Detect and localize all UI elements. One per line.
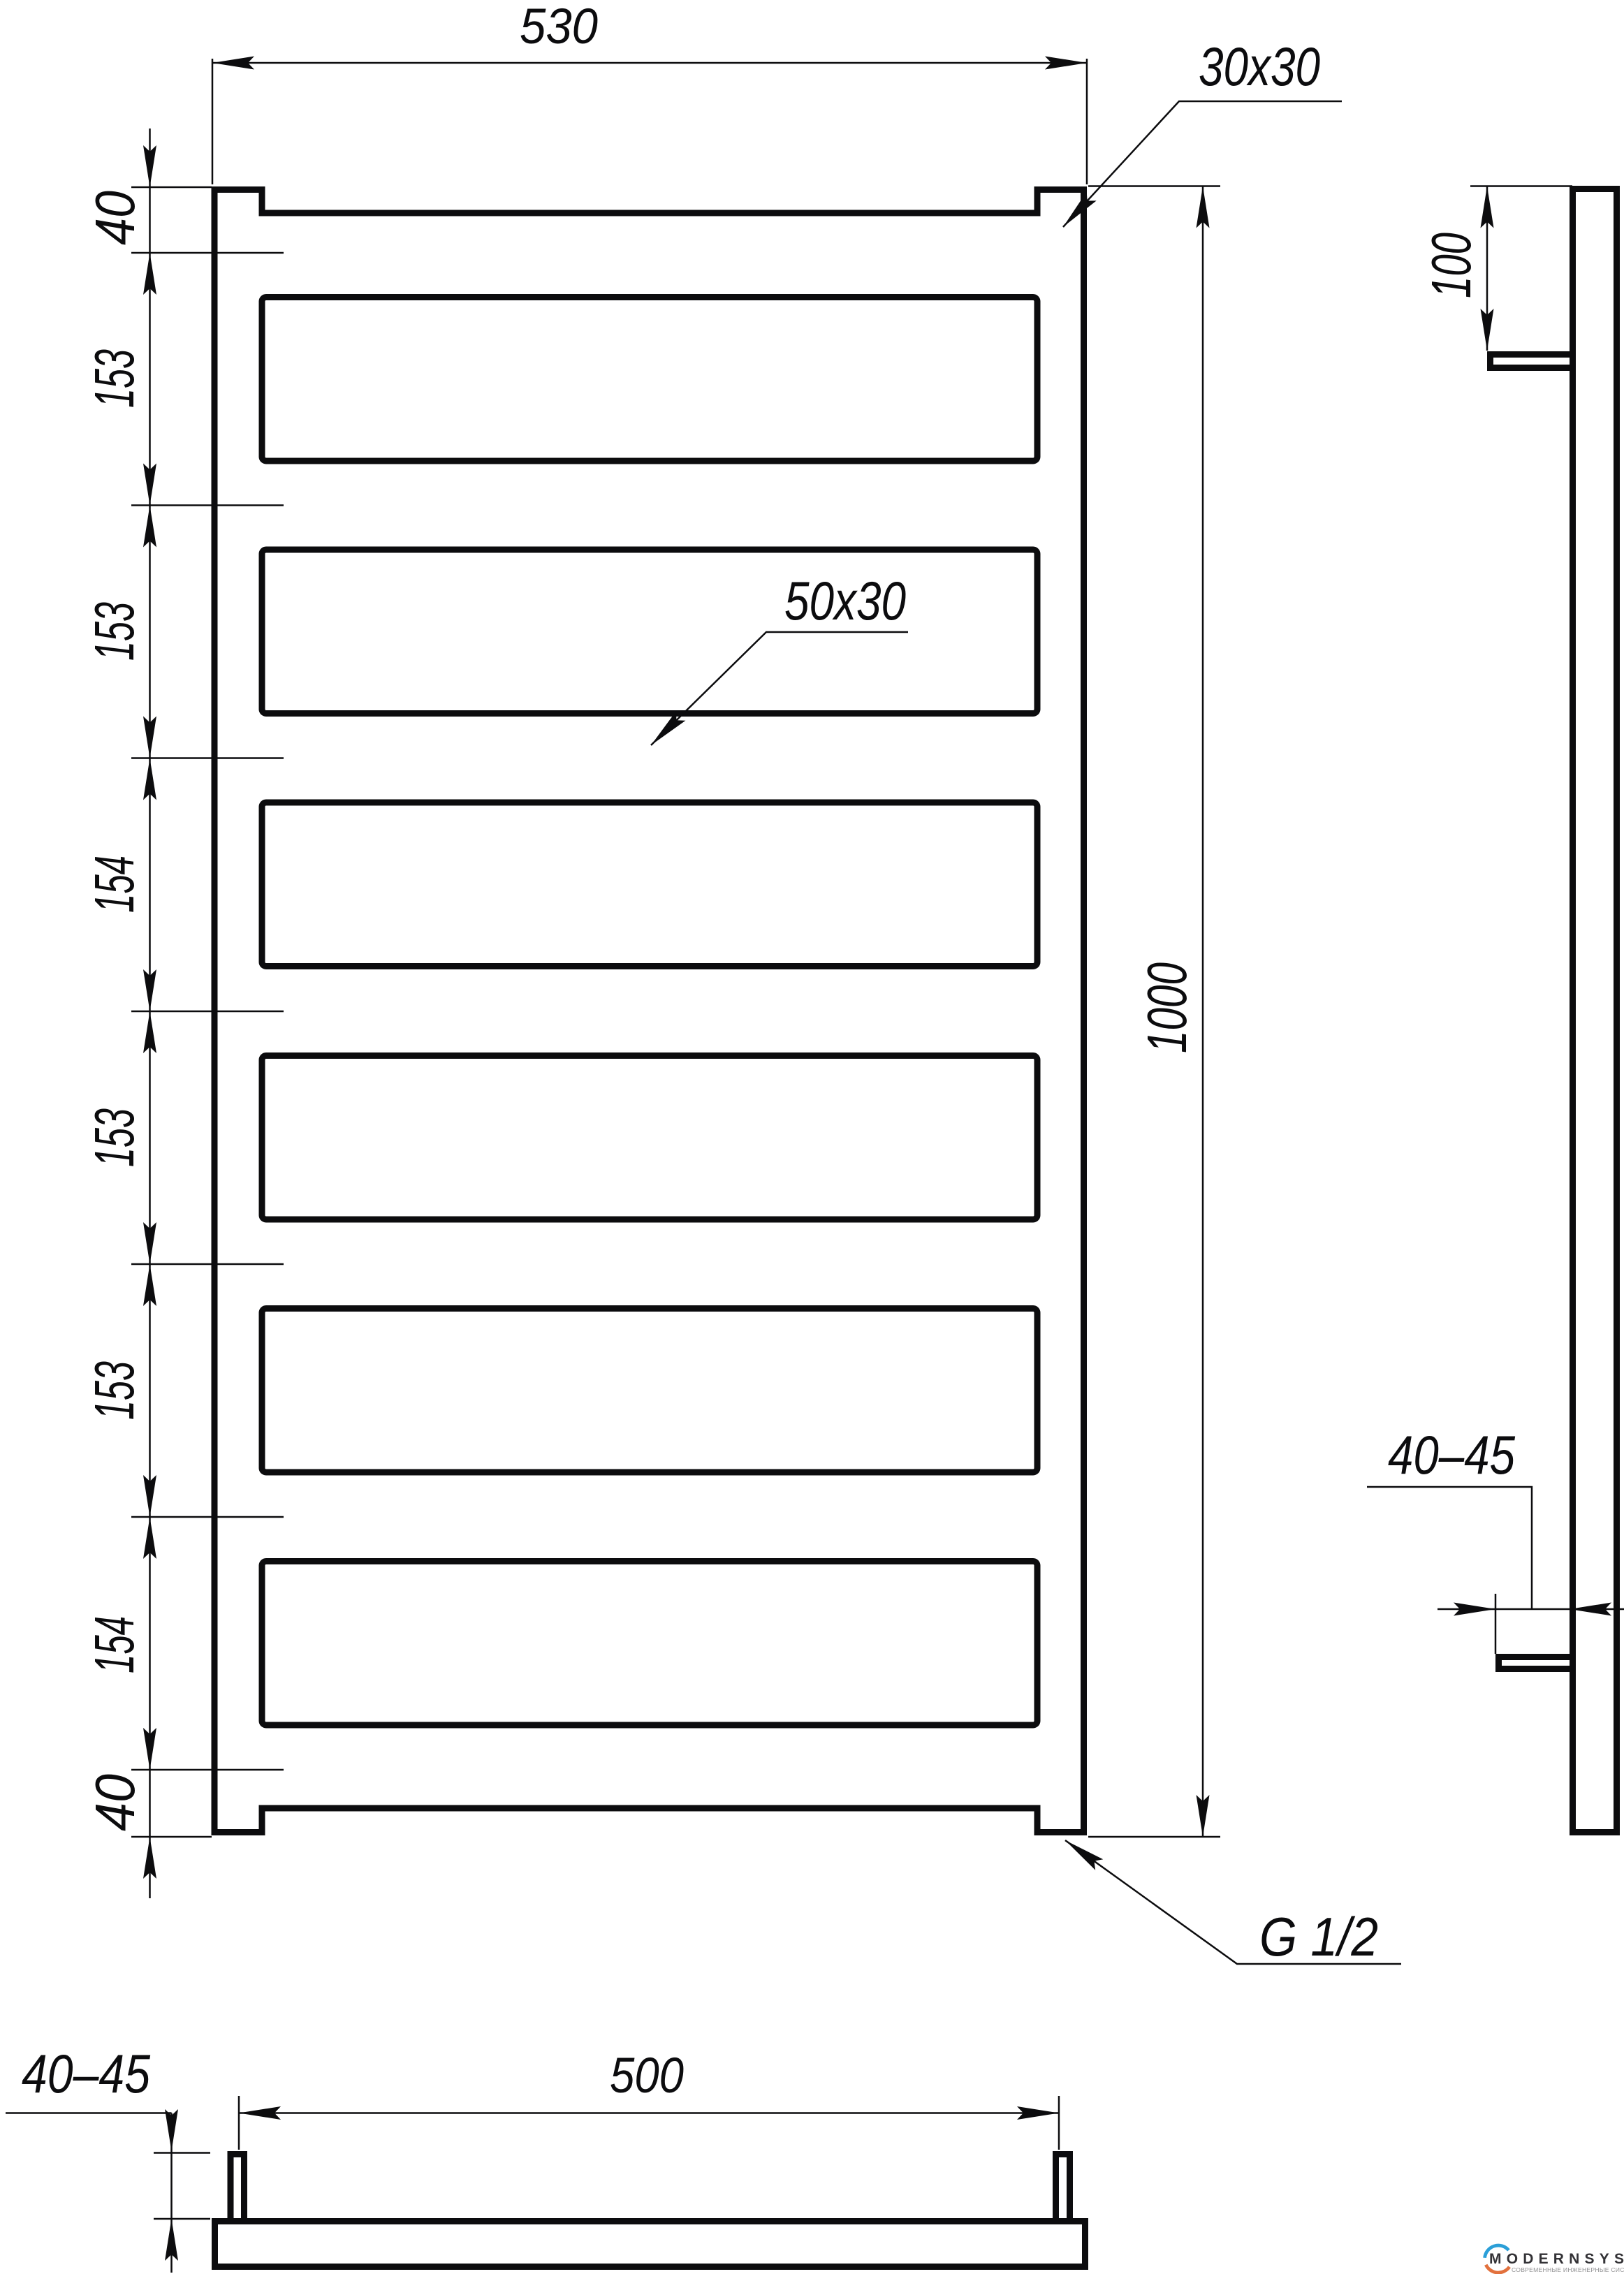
svg-text:154: 154 xyxy=(83,1616,145,1673)
svg-text:40–45: 40–45 xyxy=(1388,1424,1516,1486)
svg-text:СОВРЕМЕННЫЕ ИНЖЕНЕРНЫЕ СИСТЕМЫ: СОВРЕМЕННЫЕ ИНЖЕНЕРНЫЕ СИСТЕМЫ xyxy=(1512,2266,1624,2273)
svg-text:500: 500 xyxy=(610,2048,684,2104)
svg-text:153: 153 xyxy=(83,349,145,408)
svg-text:153: 153 xyxy=(83,1108,145,1167)
svg-text:100: 100 xyxy=(1420,233,1482,298)
svg-text:MODERNSYS: MODERNSYS xyxy=(1489,2251,1624,2267)
svg-text:50x30: 50x30 xyxy=(784,570,906,631)
svg-text:30x30: 30x30 xyxy=(1199,36,1320,97)
svg-text:153: 153 xyxy=(83,1361,145,1420)
svg-text:40–45: 40–45 xyxy=(22,2043,151,2104)
svg-text:40: 40 xyxy=(84,1774,146,1831)
svg-text:40: 40 xyxy=(84,191,146,245)
svg-text:1000: 1000 xyxy=(1136,962,1198,1053)
svg-text:153: 153 xyxy=(83,602,145,661)
svg-text:G 1/2: G 1/2 xyxy=(1259,1906,1378,1967)
svg-text:530: 530 xyxy=(520,0,598,54)
svg-text:154: 154 xyxy=(83,856,145,913)
